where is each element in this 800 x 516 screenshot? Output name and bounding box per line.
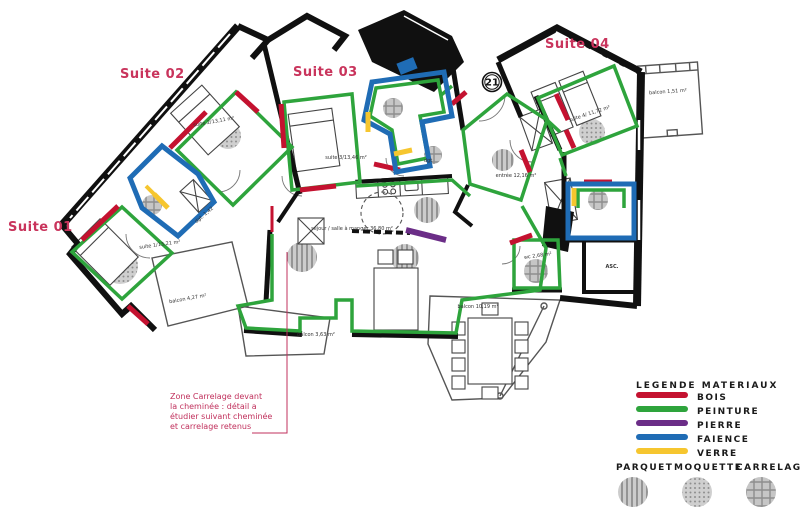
room-label-suite3: suite 3/13,46 m²	[325, 155, 366, 161]
annotation-line-1: Zone Carrelage devant	[170, 392, 262, 401]
suite-01-title: Suite 01	[8, 220, 73, 235]
room-label-sejour: séjour / salle à manger 36,80 m²	[311, 225, 393, 232]
legend-label-peinture: PEINTURE	[697, 407, 759, 417]
legend-swatch-pierre	[636, 420, 688, 426]
room-label-balcon-sejour: balcon 3,63 m²	[297, 332, 335, 338]
moquette-pattern-circle	[682, 477, 712, 507]
legend-floor-moquette: MOQUETTE	[674, 463, 742, 473]
bed	[288, 108, 340, 172]
suite-03-title: Suite 03	[293, 65, 358, 80]
floor-plan-canvas: 21 Suite 01 Suite 02 Suite 03 Suite 04 s…	[0, 0, 800, 512]
unit-number-badge: 21	[483, 73, 502, 92]
legend-label-faience: FAIENCE	[697, 435, 749, 445]
carrelage-pattern-circle	[746, 477, 776, 507]
parquet-pattern-circle	[618, 477, 648, 507]
unit-number: 21	[485, 78, 499, 89]
parquet-marker	[287, 242, 317, 272]
legend-floor-carrelage: CARRELAGE	[736, 463, 800, 473]
annotation-line-2: la cheminée : détail a	[170, 401, 257, 411]
legend-label-verre: VERRE	[697, 449, 738, 459]
carrelage-marker	[383, 98, 403, 118]
legend-label-bois: BOIS	[697, 393, 727, 403]
legend-swatch-verre	[636, 448, 688, 454]
suite-02-title: Suite 02	[120, 67, 185, 82]
suite-04-title: Suite 04	[545, 37, 610, 52]
carrelage-marker	[588, 190, 608, 210]
parquet-marker	[414, 197, 440, 223]
legend-floor-parquet: PARQUET	[616, 463, 673, 473]
room-label-balcon-grand: balcon 10,19 m²	[458, 304, 499, 310]
annotation-line-3: étudier suivant cheminée	[170, 411, 272, 421]
room-label-entree: entrée 12,16 m²	[496, 172, 537, 179]
legend-title: LEGENDE MATERIAUX	[636, 381, 778, 391]
legend-swatch-bois	[636, 392, 688, 398]
parquet-marker	[492, 149, 514, 171]
annotation-line-4: et carrelage retenus	[170, 422, 251, 431]
room-label-dgt2: dgt	[424, 158, 432, 164]
legend-swatch-peinture	[636, 406, 688, 412]
legend-label-pierre: PIERRE	[697, 421, 742, 431]
legend-swatch-faience	[636, 434, 688, 440]
room-label-asc: ASC.	[605, 264, 618, 270]
